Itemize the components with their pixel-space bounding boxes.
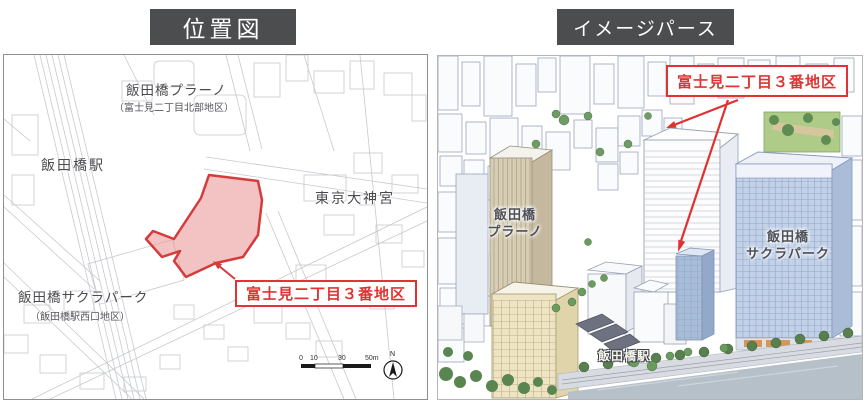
scale-tick-50m: 50m [365,355,379,362]
label-sakura-line2: サクラパーク [738,245,838,262]
district-label-text-persp: 富士見二丁目３番地区 [677,71,837,92]
background-tower-left [456,174,488,314]
district-callout-arrow [213,261,235,279]
label-sakura-tower: 飯田橋 サクラパーク [738,228,838,262]
compass-n-label: N [390,351,395,358]
district-area-polygon [146,175,262,277]
label-sakura-park: 飯田橋サクラパーク [18,286,148,306]
image-perspective-title-text: イメージパース [573,14,718,41]
label-plano-line1: 飯田橋 [485,206,545,223]
label-plano-line2: プラーノ [485,223,545,240]
north-compass: N [384,351,402,379]
label-iidabashi-plano: 飯田橋プラーノ [126,79,227,99]
image-perspective-title: イメージパース [557,9,734,45]
label-sakura-park-sub: （飯田橋駅西口地区） [30,308,130,323]
perspective-figure: 富士見二丁目３番地区 飯田橋 プラーノ 飯田橋 サクラパーク 飯田橋駅 [437,55,863,400]
label-tokyo-daijingu: 東京大神宮 [315,188,395,208]
scale-tick-10: 10 [310,355,318,362]
district-label-text-map: 富士見二丁目３番地区 [246,283,406,304]
district-secondary-tower [676,248,714,340]
scale-tick-0: 0 [299,355,303,362]
park-block [764,112,840,152]
figure-canvas: 位置図 イメージパース [0,0,865,407]
location-map-figure: 0 10 30 50m N 飯田橋プラーノ （富士見二丁目北部地区） 飯田橋駅 … [3,54,428,400]
label-plano-tower: 飯田橋 プラーノ [485,206,545,240]
label-iidabashi-plano-sub: （富士見二丁目北部地区） [114,99,234,114]
label-station-persp: 飯田橋駅 [598,348,650,365]
scale-bar: 0 10 30 50m [299,355,379,368]
label-sakura-line1: 飯田橋 [738,228,838,245]
location-map-title: 位置図 [150,9,296,45]
location-map-title-text: 位置図 [183,10,264,44]
label-iidabashi-station: 飯田橋駅 [41,155,105,175]
district-label-box-persp: 富士見二丁目３番地区 [666,65,848,97]
scale-tick-30: 30 [338,355,346,362]
district-label-box-map: 富士見二丁目３番地区 [235,280,417,307]
